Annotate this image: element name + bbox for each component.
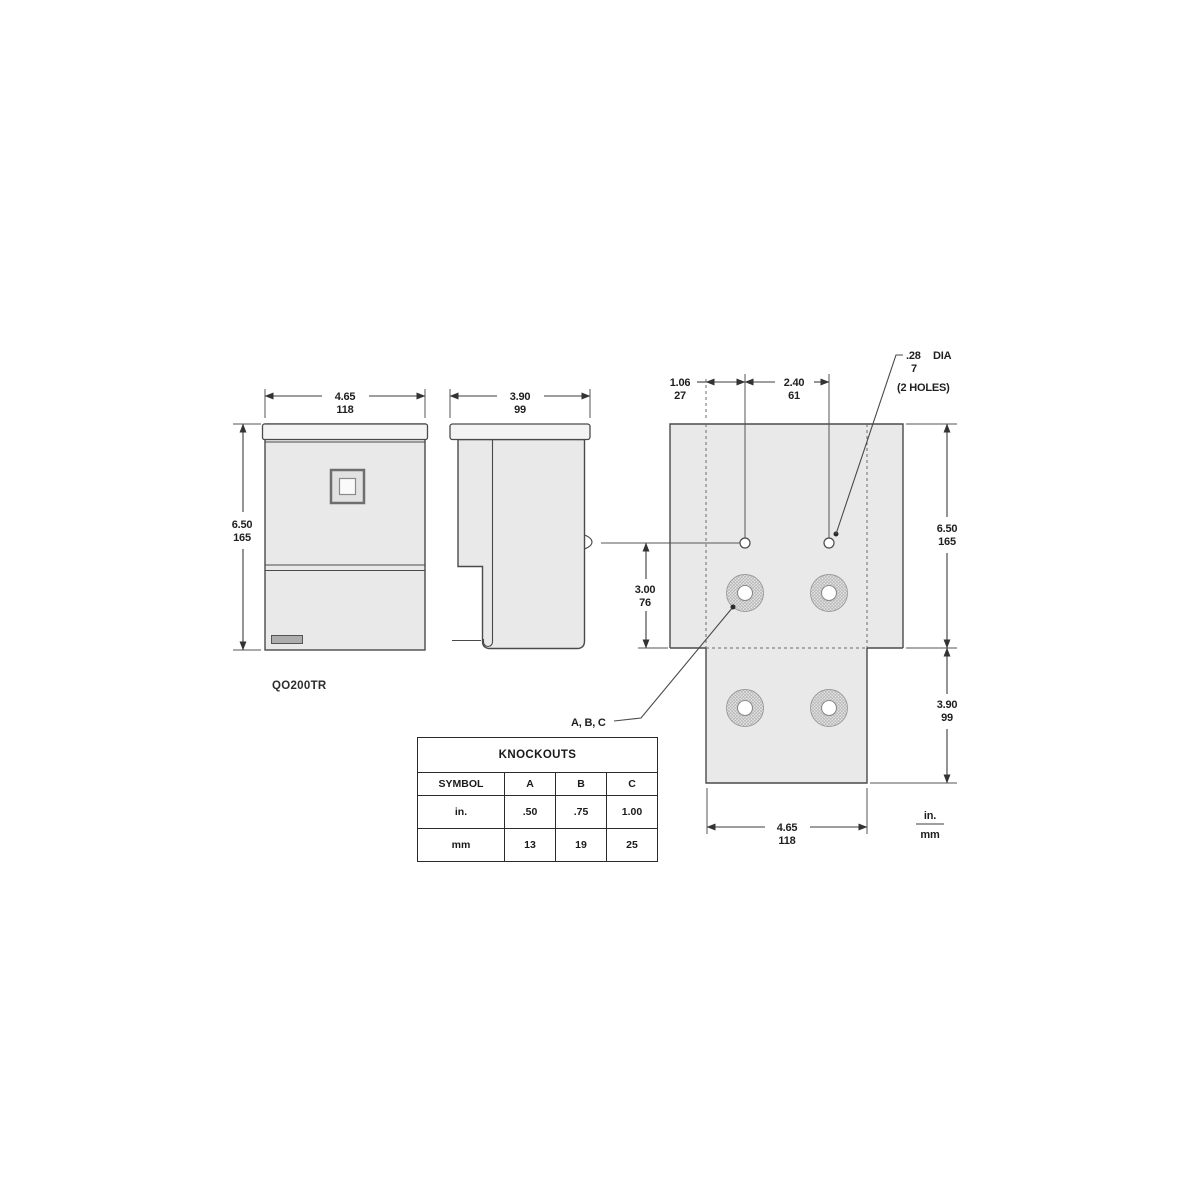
knockout-bottom-left: [727, 690, 764, 727]
dim-bottom-flap-mm: 99: [941, 712, 953, 724]
dim-back-height-mm: 165: [938, 536, 956, 548]
dim-hole-spacing-mm: 61: [788, 390, 800, 402]
dim-hole-row-in: 3.00: [635, 584, 656, 596]
dimension-drawing: 4.65 118 6.50 165 QO200TR 3.90 99: [0, 0, 1200, 1200]
dim-bottom-flap-in: 3.90: [937, 699, 958, 711]
hole-dia-mm: 7: [911, 363, 917, 375]
front-view: 4.65 118 6.50 165 QO200TR: [232, 389, 428, 692]
cell-c-mm: 25: [607, 828, 658, 861]
dim-hole-spacing-in: 2.40: [784, 377, 805, 389]
knockouts-table-header-row: SYMBOL A B C: [418, 773, 658, 796]
knockouts-table-title: KNOCKOUTS: [418, 738, 658, 773]
cell-b-in: .75: [556, 795, 607, 828]
hole-dia-in: .28: [906, 350, 921, 362]
dim-front-width-in: 4.65: [335, 391, 356, 403]
dim-front-width-mm: 118: [336, 404, 353, 416]
mounting-hole-left: [740, 538, 750, 548]
dim-back-height: 6.50 165: [906, 424, 957, 648]
dim-hole-offset-mm: 27: [674, 390, 686, 402]
dim-bottom-width-mm: 118: [778, 835, 795, 847]
dim-bottom-flap: 3.90 99: [870, 648, 957, 783]
dim-bottom-width-in: 4.65: [777, 822, 798, 834]
dim-back-height-in: 6.50: [937, 523, 958, 535]
col-header-a: A: [505, 773, 556, 796]
col-header-b: B: [556, 773, 607, 796]
side-enclosure-body: [458, 440, 585, 649]
side-rain-cap: [450, 424, 590, 440]
table-row-mm: mm 13 19 25: [418, 828, 658, 861]
dim-hole-offset-in: 1.06: [670, 377, 691, 389]
dim-bottom-width: 4.65 118: [707, 788, 867, 847]
back-panel: [670, 424, 903, 648]
front-rain-cap: [263, 424, 428, 440]
cell-symbol-mm: mm: [418, 828, 505, 861]
front-nameplate: [272, 636, 303, 644]
hole-count-note: (2 HOLES): [897, 382, 950, 394]
dim-front-height-mm: 165: [233, 532, 251, 544]
cell-a-mm: 13: [505, 828, 556, 861]
units-millimeters: mm: [920, 829, 940, 841]
units-inches: in.: [924, 810, 936, 822]
front-handle: [340, 479, 356, 495]
cell-c-in: 1.00: [607, 795, 658, 828]
leader-dot: [731, 605, 736, 610]
cell-symbol-in: in.: [418, 795, 505, 828]
side-view: 3.90 99: [450, 389, 592, 649]
front-enclosure-body: [265, 424, 425, 650]
units-note: in. mm: [916, 810, 944, 841]
dim-front-width: 4.65 118: [265, 389, 425, 418]
cell-b-mm: 19: [556, 828, 607, 861]
table-row-inches: in. .50 .75 1.00: [418, 795, 658, 828]
dim-front-height: 6.50 165: [232, 424, 261, 650]
dim-side-depth: 3.90 99: [450, 389, 590, 418]
col-header-symbol: SYMBOL: [418, 773, 505, 796]
knockouts-table: KNOCKOUTS SYMBOL A B C in. .50 .75 1.00 …: [417, 737, 658, 862]
knockout-back-right: [811, 575, 848, 612]
dim-side-depth-in: 3.90: [510, 391, 531, 403]
hole-dia-label: DIA: [933, 350, 952, 362]
knockouts-table-title-row: KNOCKOUTS: [418, 738, 658, 773]
knockout-bottom-right: [811, 690, 848, 727]
mounting-hole-right: [824, 538, 834, 548]
col-header-c: C: [607, 773, 658, 796]
dim-hole-row-mm: 76: [639, 597, 651, 609]
knockout-callout-label: A, B, C: [571, 717, 606, 729]
dim-front-height-in: 6.50: [232, 519, 253, 531]
cell-a-in: .50: [505, 795, 556, 828]
model-number-label: QO200TR: [272, 680, 327, 692]
side-latch-hasp: [585, 535, 593, 549]
dim-side-depth-mm: 99: [514, 404, 526, 416]
technical-drawing-page: 4.65 118 6.50 165 QO200TR 3.90 99: [0, 0, 1200, 1200]
